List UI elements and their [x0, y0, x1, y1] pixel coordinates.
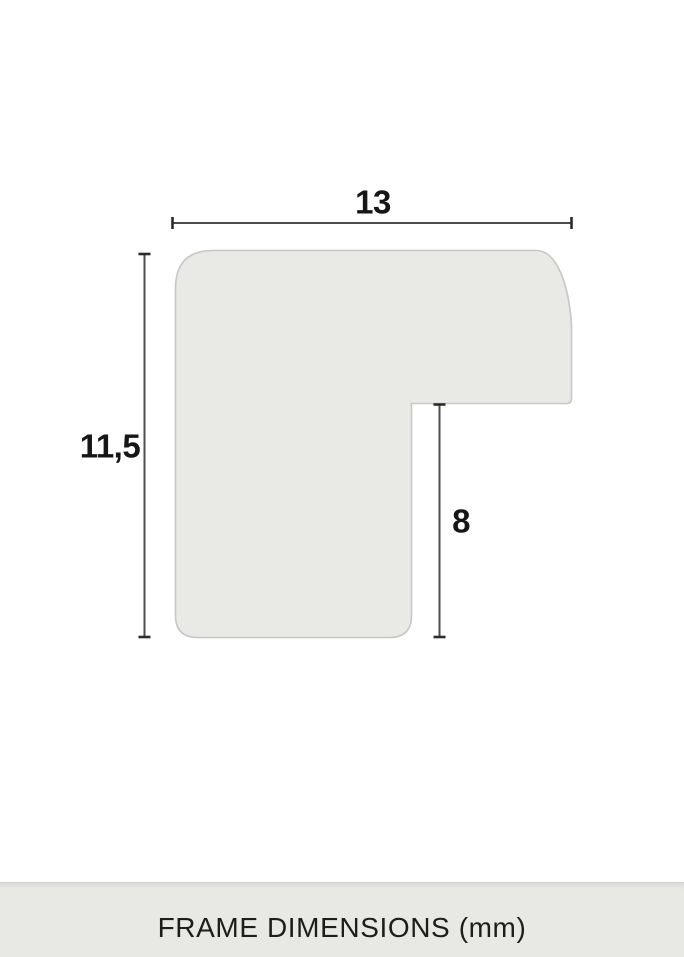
rabbet-depth-dimension-line	[434, 405, 446, 638]
height-dimension-line	[139, 254, 151, 637]
height-dimension-label: 11,5	[80, 430, 140, 463]
rabbet-depth-dimension-label: 8	[452, 505, 470, 538]
footer-bar: FRAME DIMENSIONS (mm)	[0, 882, 684, 957]
frame-profile-shape	[176, 251, 572, 638]
frame-dimensions-diagram: 13 11,5 8 FRAME DIMENSIONS (mm)	[0, 0, 684, 957]
footer-caption: FRAME DIMENSIONS (mm)	[158, 912, 527, 944]
diagram-area: 13 11,5 8	[0, 0, 684, 882]
width-dimension-label: 13	[355, 186, 391, 219]
